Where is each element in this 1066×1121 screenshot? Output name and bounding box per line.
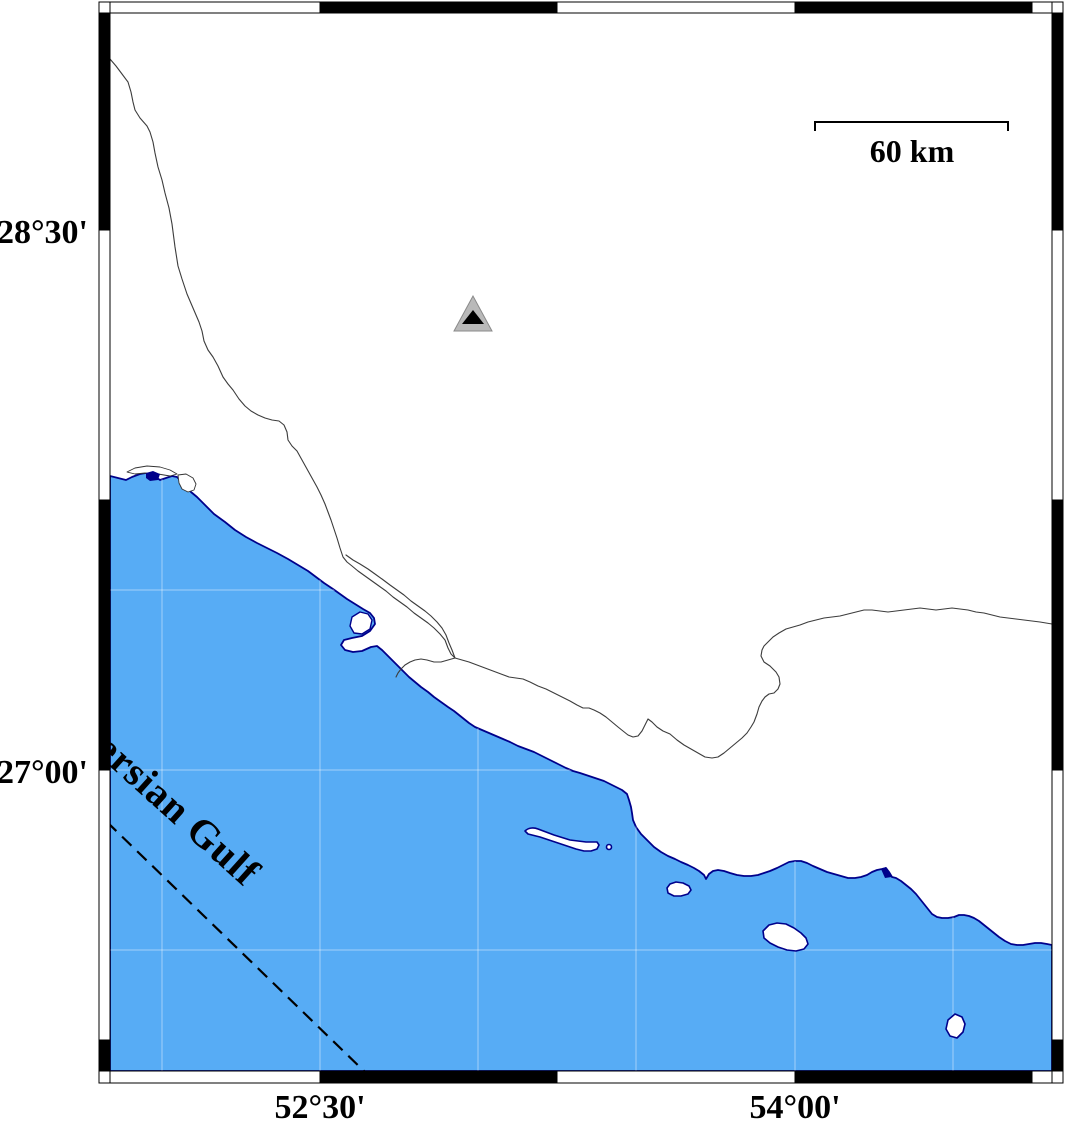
station-triangle-marker <box>454 296 492 331</box>
frame-segment <box>320 1071 557 1083</box>
inland-boundary <box>455 608 1052 758</box>
frame-segment <box>1052 1040 1063 1071</box>
latitude-label-bottom: 27°00' <box>0 754 88 791</box>
scale-bar-bracket <box>815 122 1008 131</box>
frame-corner <box>99 2 110 13</box>
map-page: Persian Gulf 60 km <box>0 0 1066 1121</box>
map-interior: Persian Gulf 60 km <box>69 59 1052 1073</box>
frame-segment <box>320 2 557 13</box>
frame-segment <box>99 500 110 770</box>
frame-segment <box>795 1071 1032 1083</box>
map-canvas: Persian Gulf 60 km <box>0 0 1066 1121</box>
frame-segment <box>1052 500 1063 770</box>
longitude-label-right: 54°00' <box>749 1089 840 1121</box>
frame-segment <box>795 2 1032 13</box>
river-line-parallel <box>346 555 455 658</box>
frame-segment <box>1052 13 1063 230</box>
latitude-label-top: 28°30' <box>0 214 88 251</box>
frame-corner <box>1052 1071 1063 1083</box>
frame-segment <box>99 1040 110 1071</box>
frame-corner <box>99 1071 110 1083</box>
frame-corner <box>1052 2 1063 13</box>
frame-segment <box>99 13 110 230</box>
longitude-label-left: 52°30' <box>274 1089 365 1121</box>
persian-gulf-sea <box>110 473 1052 1071</box>
scale-bar-label: 60 km <box>870 133 955 169</box>
island <box>607 845 612 850</box>
scale-bar: 60 km <box>815 122 1008 169</box>
